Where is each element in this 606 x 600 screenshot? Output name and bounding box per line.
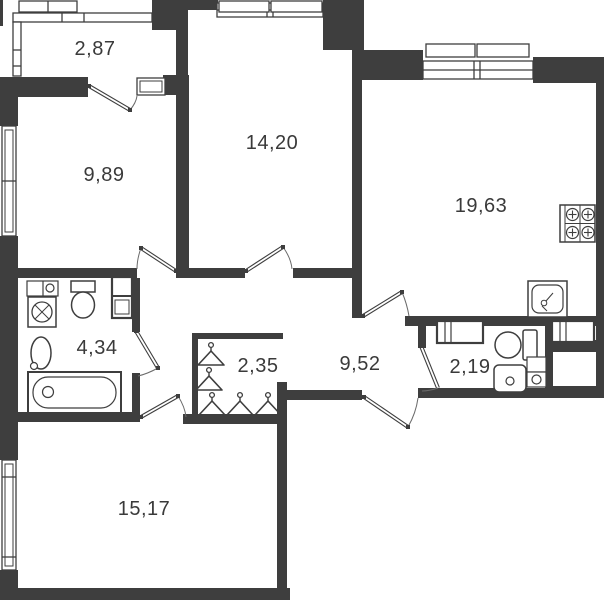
room-label-wc: 2,19 [450,356,491,378]
room-label-room-bottom: 15,17 [118,498,171,520]
bathtub-icon [28,372,121,413]
kitchen-sink-icon [528,281,567,317]
room-label-wardrobe: 2,35 [238,355,279,377]
counter-sink-icon [27,281,58,296]
room-bottom-window [2,460,16,570]
floor-plan-page: 2,87 9,89 14,20 19,63 4,34 2,35 9,52 2,1… [0,0,606,600]
wc-sink-icon [494,365,526,392]
balcony-glazing-top-window [13,13,152,22]
balcony-radiator [19,1,77,12]
room-label-hallway: 9,52 [340,353,381,375]
bathroom-cabinet-icon [112,277,132,318]
room-left-window [2,126,16,236]
room-label-balcony: 2,87 [75,38,116,60]
room-label-room-top: 14,20 [246,132,299,154]
room-label-room-left: 9,89 [84,164,125,186]
room-top-radiator [219,1,322,12]
balcony-inner-window [137,78,165,95]
room-label-bathroom: 4,34 [77,337,118,359]
kitchen-radiator [426,44,529,57]
balcony-glazing-left-window [13,22,21,76]
wc-cabinet-icon [527,357,546,387]
washing-machine-icon [28,297,56,327]
toilet-icon [71,281,95,318]
stove-icon [560,205,595,242]
kitchen-window [423,61,533,79]
washbasin-icon [31,337,52,370]
wc-toilet-icon [495,330,537,360]
room-label-kitchen-living: 19,63 [455,195,508,217]
wc-shaft [437,321,483,343]
floor-plan-image: 2,87 9,89 14,20 19,63 4,34 2,35 9,52 2,1… [0,0,606,600]
kitchen-shaft [552,321,594,342]
